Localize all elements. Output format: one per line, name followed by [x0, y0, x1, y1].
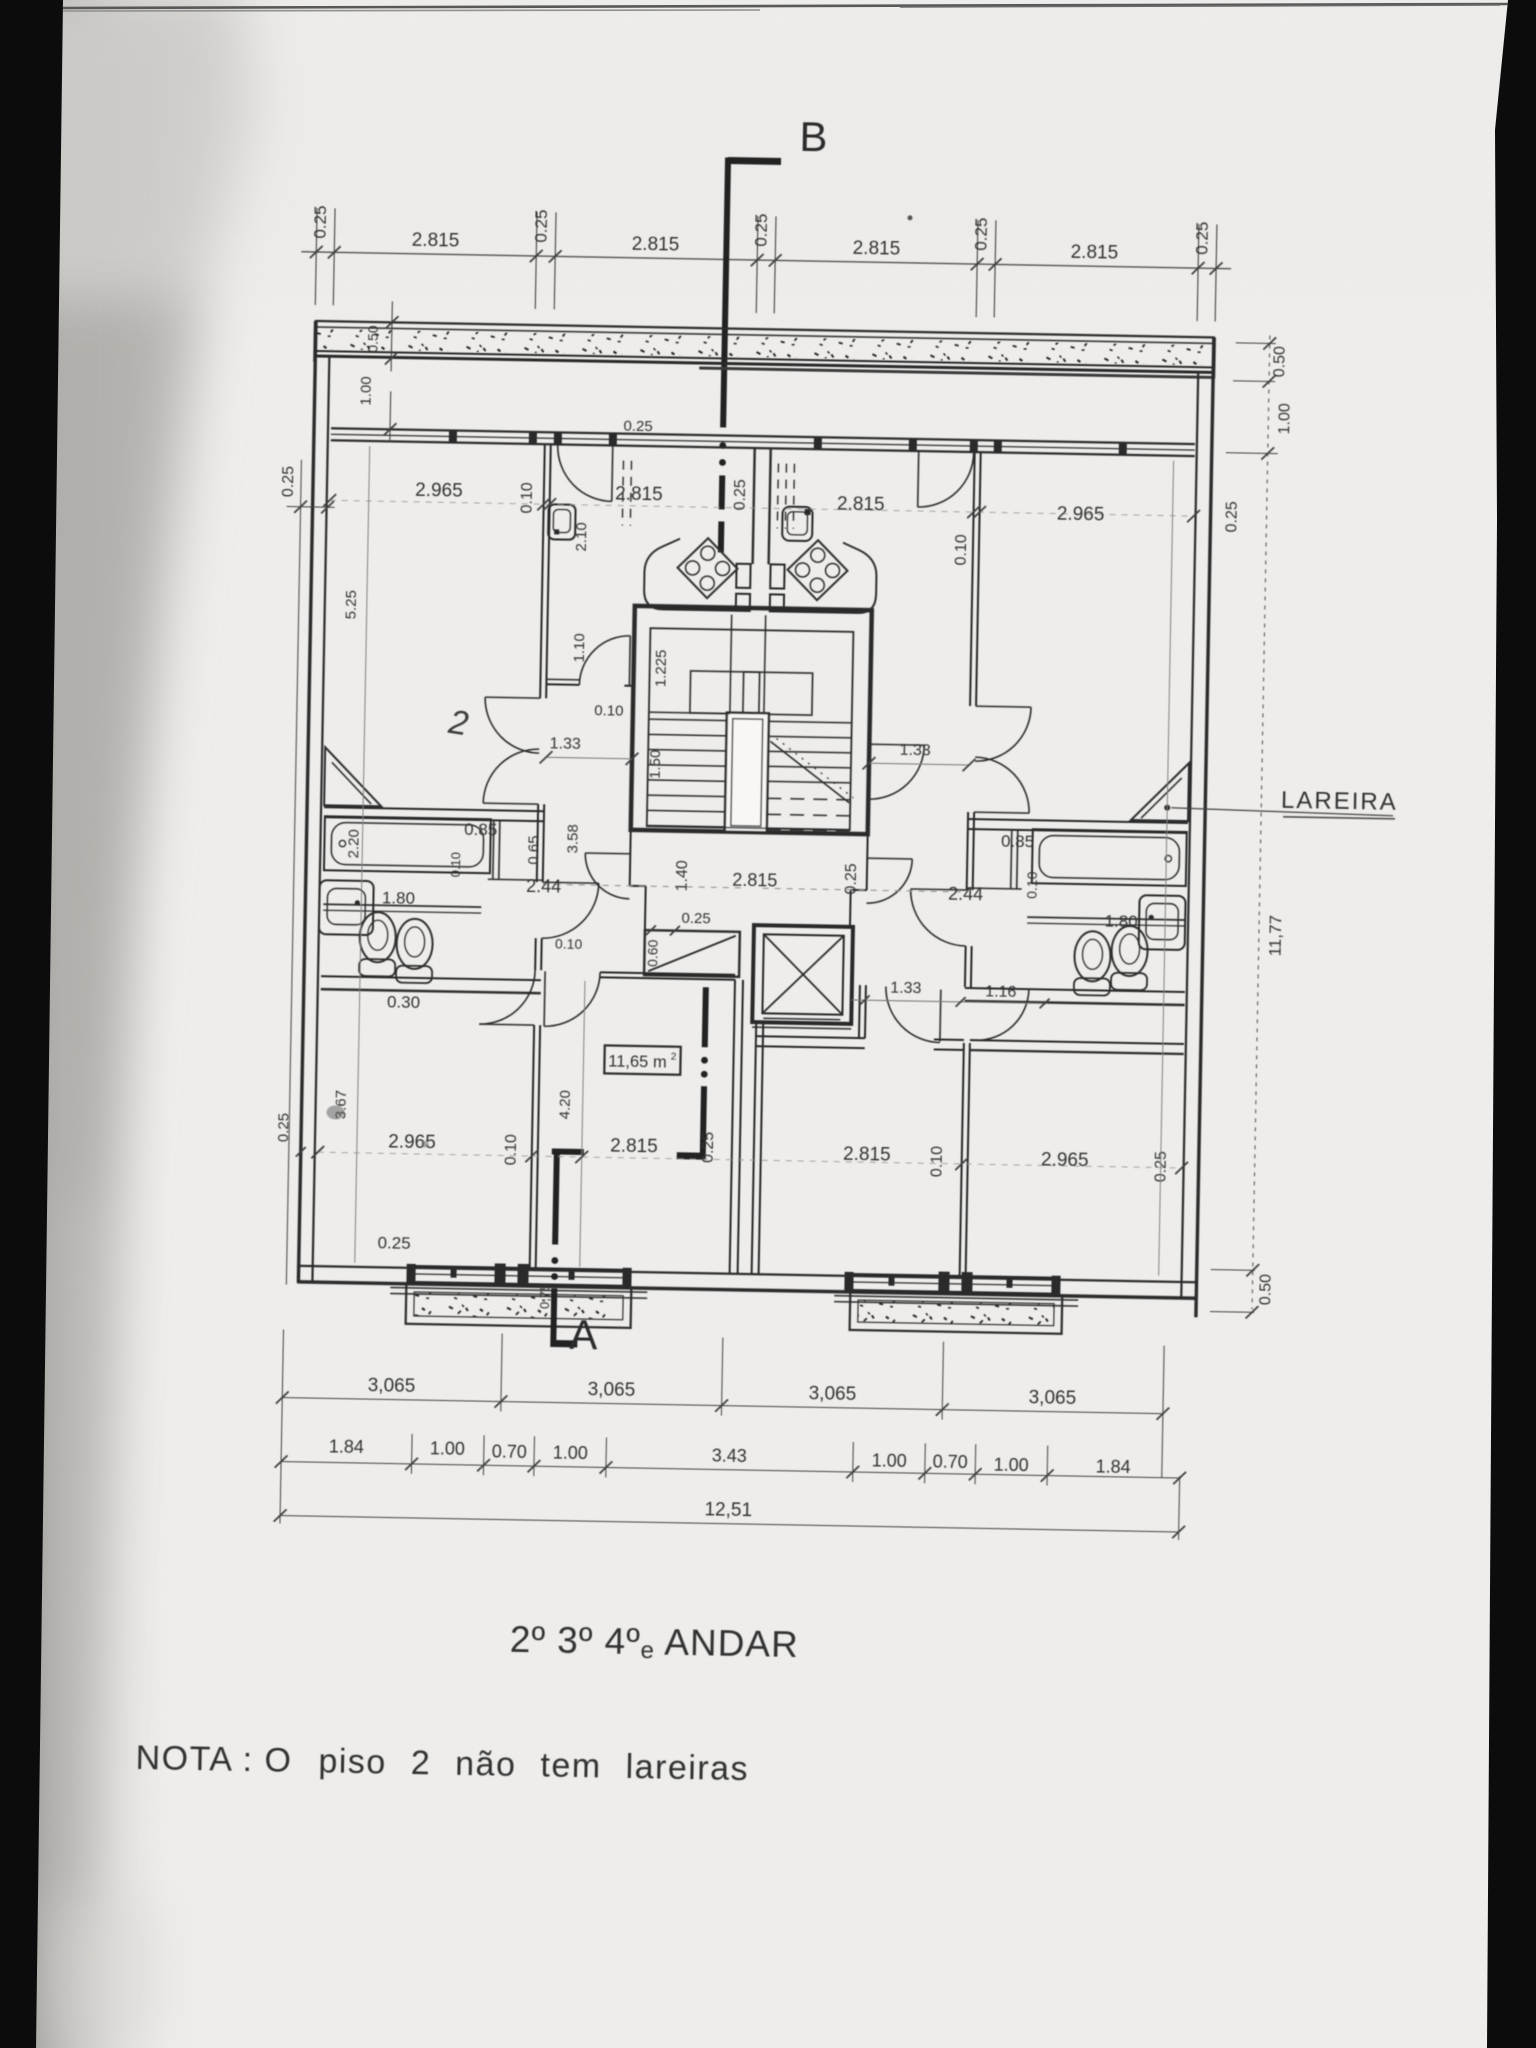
svg-text:2.815: 2.815	[610, 1136, 658, 1158]
svg-text:5.25: 5.25	[343, 590, 361, 620]
svg-text:0.25: 0.25	[275, 1113, 293, 1143]
svg-text:1.00: 1.00	[993, 1455, 1028, 1476]
svg-text:2.965: 2.965	[388, 1131, 436, 1153]
svg-text:2.10: 2.10	[573, 522, 591, 552]
svg-text:3,065: 3,065	[587, 1379, 635, 1401]
svg-text:1.00: 1.00	[1276, 403, 1294, 435]
svg-text:0.25: 0.25	[700, 1131, 718, 1163]
svg-text:0.85: 0.85	[1001, 832, 1034, 852]
svg-text:0.25: 0.25	[311, 205, 331, 238]
svg-text:0.25: 0.25	[280, 466, 298, 498]
svg-text:0.25: 0.25	[531, 209, 551, 242]
svg-text:2.965: 2.965	[415, 480, 463, 502]
svg-text:0.25: 0.25	[843, 863, 861, 895]
svg-text:3.58: 3.58	[564, 824, 582, 854]
svg-text:1.16: 1.16	[985, 983, 1017, 1001]
svg-text:2.815: 2.815	[852, 238, 900, 260]
svg-text:0.25: 0.25	[681, 910, 711, 928]
svg-text:0.25: 0.25	[751, 213, 771, 246]
svg-text:0.10: 0.10	[953, 534, 971, 566]
svg-text:4.20: 4.20	[556, 1090, 574, 1120]
svg-text:3,065: 3,065	[808, 1383, 856, 1405]
svg-text:1.40: 1.40	[674, 860, 692, 892]
svg-text:0.85: 0.85	[464, 820, 497, 840]
svg-text:0.25: 0.25	[1192, 221, 1212, 254]
svg-text:1.33: 1.33	[550, 735, 582, 753]
svg-text:0.25: 0.25	[732, 479, 750, 511]
svg-text:0.65: 0.65	[525, 835, 543, 865]
svg-text:1.225: 1.225	[652, 649, 670, 687]
svg-text:3,065: 3,065	[1028, 1387, 1076, 1409]
svg-text:2.20: 2.20	[345, 829, 363, 859]
svg-text:2.815: 2.815	[732, 870, 777, 891]
svg-text:1.00: 1.00	[357, 376, 375, 406]
svg-text:0.10: 0.10	[1024, 871, 1041, 899]
svg-text:0.50: 0.50	[1271, 346, 1289, 378]
svg-text:2.965: 2.965	[1057, 504, 1105, 526]
svg-text:0.30: 0.30	[387, 992, 420, 1012]
svg-text:1.84: 1.84	[1095, 1456, 1130, 1477]
svg-text:0.10: 0.10	[555, 935, 583, 952]
svg-text:11,77: 11,77	[1266, 915, 1286, 957]
svg-text:0.70: 0.70	[932, 1451, 967, 1472]
svg-text:1.00: 1.00	[430, 1438, 465, 1459]
svg-text:0.10: 0.10	[594, 702, 624, 720]
svg-text:0.10: 0.10	[503, 1134, 521, 1166]
svg-text:2.815: 2.815	[843, 1144, 891, 1166]
svg-text:1.50: 1.50	[647, 750, 665, 780]
svg-text:0.25: 0.25	[971, 217, 991, 250]
svg-text:1.10: 1.10	[571, 633, 589, 663]
svg-text:0.70: 0.70	[492, 1441, 527, 1462]
svg-text:1.00: 1.00	[872, 1450, 907, 1471]
svg-text:3.43: 3.43	[712, 1445, 747, 1466]
svg-text:11,65 m: 11,65 m	[608, 1052, 667, 1071]
svg-text:0.50: 0.50	[364, 325, 381, 353]
svg-text:0.10: 0.10	[519, 482, 537, 514]
svg-text:2.815: 2.815	[412, 230, 460, 252]
svg-text:2.815: 2.815	[1070, 242, 1118, 264]
svg-text:0.10: 0.10	[448, 852, 463, 878]
svg-text:2: 2	[671, 1052, 677, 1063]
svg-text:1.84: 1.84	[329, 1436, 364, 1457]
svg-text:1.80: 1.80	[1104, 912, 1137, 932]
svg-text:12,51: 12,51	[704, 1499, 752, 1521]
svg-text:0.10: 0.10	[928, 1146, 946, 1178]
svg-text:2.965: 2.965	[1041, 1149, 1089, 1171]
svg-text:0.25: 0.25	[1223, 501, 1241, 533]
svg-text:0,75: 0,75	[537, 1284, 552, 1310]
svg-text:0.25: 0.25	[377, 1233, 410, 1253]
svg-text:1.00: 1.00	[553, 1443, 588, 1464]
svg-text:2.44: 2.44	[526, 876, 561, 897]
svg-text:0.50: 0.50	[1257, 1274, 1275, 1306]
svg-text:LAREIRA: LAREIRA	[1281, 787, 1398, 816]
svg-text:1.33: 1.33	[900, 742, 932, 760]
svg-text:2.815: 2.815	[837, 494, 885, 516]
svg-text:1.33: 1.33	[890, 980, 922, 998]
svg-text:B: B	[799, 113, 828, 161]
svg-text:0.60: 0.60	[644, 939, 661, 967]
svg-text:2.815: 2.815	[615, 483, 663, 505]
svg-text:3,065: 3,065	[368, 1375, 416, 1397]
svg-text:A: A	[569, 1311, 598, 1359]
svg-text:2.815: 2.815	[631, 234, 679, 256]
svg-text:0.25: 0.25	[623, 418, 653, 436]
svg-text:1.80: 1.80	[382, 888, 415, 908]
svg-text:2.44: 2.44	[948, 884, 983, 905]
